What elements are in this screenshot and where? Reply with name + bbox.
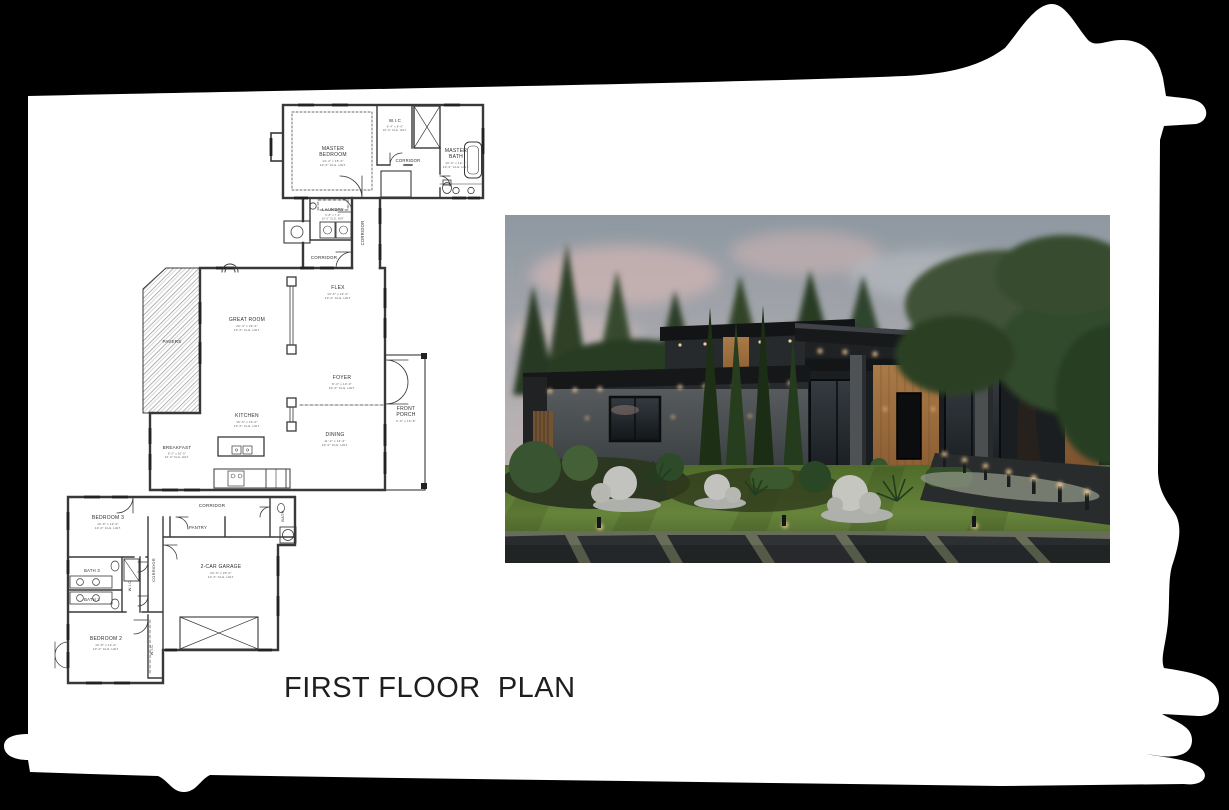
svg-text:BATH: BATH xyxy=(280,510,285,521)
sheet-canvas: MASTERBEDROOM13'-4" x 15'-0"10'-0" CLG. … xyxy=(0,0,1229,810)
svg-text:PAVERS: PAVERS xyxy=(162,339,181,344)
svg-text:BATH 3: BATH 3 xyxy=(84,568,100,573)
render-photo xyxy=(475,215,1165,563)
svg-text:BATH: BATH xyxy=(449,154,463,160)
svg-text:10'-0" CLG. HGT.: 10'-0" CLG. HGT. xyxy=(320,163,346,167)
svg-text:10'-0" CLG. HGT.: 10'-0" CLG. HGT. xyxy=(322,218,345,221)
svg-text:8'-2" x 10'-0": 8'-2" x 10'-0" xyxy=(168,452,186,456)
room-label-bath: BATH xyxy=(280,510,285,521)
svg-text:BATH 2: BATH 2 xyxy=(84,597,100,602)
svg-text:CORRIDOR: CORRIDOR xyxy=(396,158,421,163)
room-label-corridor-link-vertical: CORRIDOR xyxy=(360,221,365,246)
svg-text:10'-0" CLG. HGT.: 10'-0" CLG. HGT. xyxy=(93,647,119,651)
svg-text:BEDROOM: BEDROOM xyxy=(319,152,347,158)
svg-text:BEDROOM 3: BEDROOM 3 xyxy=(92,515,124,521)
room-label-bath-2: BATH 2 xyxy=(84,597,100,602)
svg-text:KITCHEN: KITCHEN xyxy=(235,413,259,419)
room-label-kitchen: KITCHEN10'-6" x 16'-0"10'-0" CLG. HGT. xyxy=(234,413,260,428)
svg-text:GREAT ROOM: GREAT ROOM xyxy=(229,317,265,323)
page-title: FIRST FLOOR PLAN xyxy=(284,672,576,705)
room-label-wic-hall: W.I.C xyxy=(128,581,132,592)
svg-text:6'-0" x 16'-8": 6'-0" x 16'-8" xyxy=(396,419,416,423)
svg-text:10'-0" CLG. HGT.: 10'-0" CLG. HGT. xyxy=(322,443,348,447)
presentation-sheet: MASTERBEDROOM13'-4" x 15'-0"10'-0" CLG. … xyxy=(0,0,1229,810)
room-label-foyer: FOYER8'-4" x 10'-0"10'-0" CLG. HGT. xyxy=(329,375,355,390)
svg-text:CORRIDOR: CORRIDOR xyxy=(311,255,338,260)
svg-text:FLEX: FLEX xyxy=(331,285,345,291)
svg-text:10'-0" CLG. HGT.: 10'-0" CLG. HGT. xyxy=(329,386,355,390)
room-label-front-porch: FRONTPORCH6'-0" x 16'-8" xyxy=(396,406,416,423)
svg-text:DINING: DINING xyxy=(326,432,345,438)
svg-text:CORRIDOR: CORRIDOR xyxy=(151,558,156,582)
room-label-corridor-master: CORRIDOR xyxy=(396,158,421,163)
room-label-bath-3: BATH 3 xyxy=(84,568,100,573)
svg-text:2-CAR GARAGE: 2-CAR GARAGE xyxy=(201,564,242,570)
svg-text:10'-0" CLG. HGT.: 10'-0" CLG. HGT. xyxy=(95,526,121,530)
svg-text:FOYER: FOYER xyxy=(333,375,352,381)
svg-text:10'-0" CLG. HGT.: 10'-0" CLG. HGT. xyxy=(165,455,189,459)
room-label-master-bedroom: MASTERBEDROOM13'-4" x 15'-0"10'-0" CLG. … xyxy=(319,146,347,167)
svg-text:PANTRY: PANTRY xyxy=(189,525,207,530)
room-label-pantry: PANTRY xyxy=(189,525,207,530)
svg-text:10'-0" CLG. HGT.: 10'-0" CLG. HGT. xyxy=(208,575,234,579)
svg-text:10'-0" CLG. HGT.: 10'-0" CLG. HGT. xyxy=(325,296,351,300)
svg-text:10'-0" CLG. HGT.: 10'-0" CLG. HGT. xyxy=(234,424,260,428)
svg-text:10'-0" CLG. HGT.: 10'-0" CLG. HGT. xyxy=(443,165,469,169)
room-label-dining: DINING11'-4" x 13'-6"10'-0" CLG. HGT. xyxy=(322,432,348,447)
svg-text:6'-4" x 9'-0": 6'-4" x 9'-0" xyxy=(387,125,403,129)
svg-text:PORCH: PORCH xyxy=(396,412,415,418)
room-label-corridor-link: CORRIDOR xyxy=(311,255,338,260)
room-label-wic-bedroom-2: W.I.C xyxy=(150,645,154,656)
svg-text:W.I.C: W.I.C xyxy=(150,645,154,656)
svg-text:BEDROOM 2: BEDROOM 2 xyxy=(90,636,122,642)
svg-text:BREAKFAST: BREAKFAST xyxy=(163,445,192,450)
room-label-corridor-lower: CORRIDOR xyxy=(199,503,226,508)
room-label-pavers: PAVERS xyxy=(162,339,181,344)
svg-text:CORRIDOR: CORRIDOR xyxy=(360,221,365,246)
svg-text:LAUNDRY: LAUNDRY xyxy=(322,207,344,212)
svg-text:W.I.C: W.I.C xyxy=(128,581,132,592)
svg-text:10'-0" CLG. HGT.: 10'-0" CLG. HGT. xyxy=(234,328,260,332)
svg-text:10'-0" CLG. HGT.: 10'-0" CLG. HGT. xyxy=(383,128,407,132)
svg-text:W.I.C: W.I.C xyxy=(389,118,402,123)
room-label-corridor-lower-vertical: CORRIDOR xyxy=(151,558,156,582)
svg-text:CORRIDOR: CORRIDOR xyxy=(199,503,226,508)
